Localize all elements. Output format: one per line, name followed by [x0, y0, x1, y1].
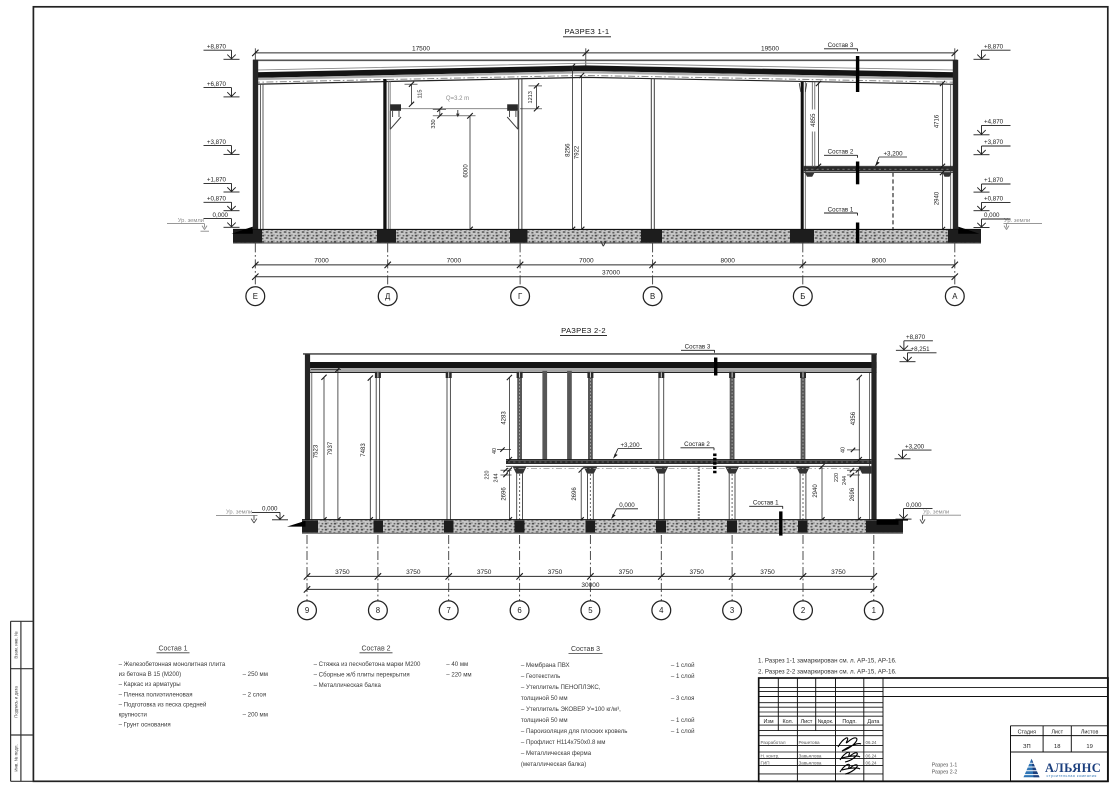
- svg-text:8256: 8256: [565, 143, 571, 157]
- svg-text:06.24: 06.24: [866, 754, 878, 759]
- svg-text:6000: 6000: [463, 164, 469, 178]
- svg-text:8: 8: [376, 606, 380, 615]
- svg-text:+3,870: +3,870: [984, 139, 1004, 146]
- svg-text:2696: 2696: [572, 487, 578, 501]
- svg-text:– Железобетонная монолитная п: – Железобетонная монолитная плита: [119, 661, 226, 668]
- svg-text:из бетона В 15 (М200): из бетона В 15 (М200): [119, 671, 182, 678]
- svg-text:220: 220: [834, 473, 840, 482]
- svg-text:37000: 37000: [602, 270, 620, 277]
- svg-text:7000: 7000: [579, 257, 594, 264]
- svg-text:Состав 3: Состав 3: [828, 42, 854, 49]
- svg-text:30000: 30000: [581, 582, 599, 589]
- svg-text:– Каркас из арматуры: – Каркас из арматуры: [119, 681, 181, 688]
- svg-text:+1,870: +1,870: [207, 177, 227, 184]
- svg-text:40: 40: [492, 448, 498, 454]
- svg-text:крупности: крупности: [119, 712, 147, 719]
- svg-text:Подп.: Подп.: [842, 719, 856, 725]
- svg-text:3750: 3750: [689, 569, 704, 576]
- svg-text:3750: 3750: [760, 569, 775, 576]
- svg-text:7523: 7523: [314, 444, 320, 458]
- svg-text:– Пленка полиэтиленовая: – Пленка полиэтиленовая: [119, 691, 193, 698]
- svg-text:Состав 1: Состав 1: [753, 500, 779, 507]
- svg-text:ГИП: ГИП: [761, 760, 770, 765]
- svg-text:Состав 3: Состав 3: [685, 344, 711, 351]
- svg-text:4: 4: [659, 606, 664, 615]
- svg-text:3750: 3750: [548, 569, 563, 576]
- svg-text:– Металлическая балка: – Металлическая балка: [314, 682, 382, 689]
- svg-text:– 1 слой: – 1 слой: [671, 662, 695, 669]
- svg-text:1. Разрез 1-1 замаркирован см.: 1. Разрез 1-1 замаркирован см. л. АР-15,…: [758, 658, 897, 665]
- svg-text:+3,200: +3,200: [905, 443, 925, 450]
- svg-text:Состав 2: Состав 2: [684, 441, 710, 448]
- svg-text:19: 19: [1086, 744, 1092, 750]
- svg-text:2696: 2696: [850, 487, 856, 501]
- svg-text:Кол.: Кол.: [782, 719, 793, 725]
- svg-text:АЛЬЯНС: АЛЬЯНС: [1045, 761, 1101, 775]
- svg-text:2. Разрез 2-2 замаркирован см.: 2. Разрез 2-2 замаркирован см. л. АР-15,…: [758, 669, 897, 676]
- svg-text:+8,251: +8,251: [911, 346, 931, 353]
- svg-text:– Металлическая ферма: – Металлическая ферма: [521, 750, 592, 757]
- svg-text:+3,200: +3,200: [883, 150, 903, 157]
- svg-text:(металлическая балка): (металлическая балка): [521, 761, 586, 768]
- svg-text:+8,870: +8,870: [207, 43, 227, 50]
- svg-text:Завьялова: Завьялова: [799, 754, 822, 759]
- svg-text:РАЗРЕЗ 1-1: РАЗРЕЗ 1-1: [565, 27, 610, 36]
- svg-text:06.24: 06.24: [866, 740, 878, 745]
- svg-text:3750: 3750: [831, 569, 846, 576]
- svg-text:– 1 слой: – 1 слой: [671, 717, 695, 724]
- svg-text:– 40 мм: – 40 мм: [446, 661, 468, 668]
- svg-text:Подпись и дата: Подпись и дата: [14, 686, 19, 718]
- svg-text:8000: 8000: [720, 257, 735, 264]
- svg-text:7937: 7937: [328, 441, 334, 455]
- svg-text:Разрез 2-2: Разрез 2-2: [932, 770, 958, 776]
- svg-text:– Стяжка из песчобетона марки: – Стяжка из песчобетона марки М200: [314, 661, 421, 668]
- svg-text:115: 115: [418, 90, 424, 99]
- svg-text:+8,870: +8,870: [984, 43, 1004, 50]
- svg-text:Состав 2: Состав 2: [828, 149, 854, 156]
- svg-text:– Профлист Н114х750х0.8 мм: – Профлист Н114х750х0.8 мм: [521, 739, 606, 746]
- svg-text:+0,870: +0,870: [984, 196, 1004, 203]
- svg-text:3750: 3750: [619, 569, 634, 576]
- svg-text:0,000: 0,000: [906, 502, 922, 509]
- svg-text:Лист: Лист: [801, 719, 813, 725]
- svg-text:1: 1: [872, 606, 876, 615]
- svg-text:+4,870: +4,870: [984, 119, 1004, 126]
- svg-text:+0,870: +0,870: [207, 196, 227, 203]
- svg-text:толщиной 50 мм: толщиной 50 мм: [521, 717, 568, 724]
- svg-text:Ур. земли: Ур. земли: [178, 218, 204, 224]
- svg-text:Состав 1: Состав 1: [158, 645, 187, 652]
- svg-text:– Геотекстиль: – Геотекстиль: [521, 673, 560, 680]
- svg-text:Состав 2: Состав 2: [361, 645, 390, 652]
- svg-text:244: 244: [842, 476, 848, 485]
- svg-text:1213: 1213: [528, 91, 534, 103]
- svg-text:Решетова: Решетова: [799, 740, 821, 745]
- svg-text:2696: 2696: [502, 487, 508, 501]
- svg-text:№док.: №док.: [818, 719, 834, 725]
- svg-text:– 2 слоя: – 2 слоя: [243, 691, 267, 698]
- svg-text:Стадия: Стадия: [1018, 729, 1036, 735]
- svg-text:+1,870: +1,870: [984, 177, 1004, 184]
- svg-text:Листов: Листов: [1081, 729, 1099, 735]
- svg-text:– Утеплитель ПЕНОПЛЭКС,: – Утеплитель ПЕНОПЛЭКС,: [521, 684, 601, 691]
- svg-text:7922: 7922: [574, 145, 580, 159]
- svg-text:7000: 7000: [447, 257, 462, 264]
- svg-text:РАЗРЕЗ 2-2: РАЗРЕЗ 2-2: [561, 326, 606, 335]
- svg-text:– 3 слоя: – 3 слоя: [671, 695, 695, 702]
- svg-text:7: 7: [447, 606, 451, 615]
- svg-text:– Сборные ж/б плиты перекрытия: – Сборные ж/б плиты перекрытия: [314, 672, 410, 679]
- svg-text:0,000: 0,000: [213, 212, 229, 219]
- svg-text:Разработал: Разработал: [761, 740, 786, 745]
- svg-text:2940: 2940: [813, 484, 819, 498]
- svg-text:5: 5: [588, 606, 593, 615]
- svg-text:Изм: Изм: [763, 719, 773, 725]
- svg-text:2: 2: [801, 606, 805, 615]
- svg-text:244: 244: [494, 474, 500, 483]
- svg-text:40: 40: [841, 447, 847, 453]
- svg-text:+6,870: +6,870: [207, 81, 227, 88]
- svg-text:Состав 3: Состав 3: [571, 646, 600, 653]
- svg-text:– 1 слой: – 1 слой: [671, 673, 695, 680]
- svg-text:0,000: 0,000: [984, 212, 1000, 219]
- svg-text:3: 3: [730, 606, 734, 615]
- svg-text:– 250 мм: – 250 мм: [243, 671, 268, 678]
- svg-text:толщиной 50 мм: толщиной 50 мм: [521, 695, 568, 702]
- svg-text:6: 6: [517, 606, 521, 615]
- svg-text:ЗП: ЗП: [1023, 744, 1031, 750]
- svg-text:– 220 мм: – 220 мм: [446, 672, 471, 679]
- svg-text:Н. контр.: Н. контр.: [761, 754, 780, 759]
- svg-text:Ур. земли: Ур. земли: [923, 509, 949, 515]
- svg-text:А: А: [952, 292, 958, 301]
- svg-text:Б: Б: [800, 292, 805, 301]
- svg-text:2940: 2940: [935, 191, 941, 205]
- svg-text:7000: 7000: [314, 257, 329, 264]
- svg-text:строительная компания: строительная компания: [1047, 774, 1097, 778]
- svg-text:Взам. инв. №: Взам. инв. №: [14, 631, 19, 658]
- svg-text:Инв. № подл.: Инв. № подл.: [14, 744, 19, 771]
- svg-text:– Мембрана ПВХ: – Мембрана ПВХ: [521, 662, 570, 669]
- svg-text:Разрез 1-1: Разрез 1-1: [932, 763, 958, 769]
- svg-text:330: 330: [431, 119, 437, 128]
- svg-text:В: В: [650, 292, 655, 301]
- svg-text:– Утеплитель ЭКОВЕР У=100 кг/м: – Утеплитель ЭКОВЕР У=100 кг/м³,: [521, 706, 621, 713]
- svg-text:17500: 17500: [412, 46, 430, 53]
- svg-text:4283: 4283: [502, 411, 508, 425]
- svg-text:0,000: 0,000: [262, 506, 278, 513]
- svg-text:3750: 3750: [406, 569, 421, 576]
- svg-text:18: 18: [1054, 744, 1060, 750]
- svg-text:– Грунт основания: – Грунт основания: [119, 722, 171, 729]
- svg-text:3750: 3750: [477, 569, 492, 576]
- svg-text:9: 9: [305, 606, 309, 615]
- svg-text:+8,870: +8,870: [906, 334, 926, 341]
- svg-text:7483: 7483: [361, 443, 367, 457]
- svg-text:– Подготовка из песка средней: – Подготовка из песка средней: [119, 701, 207, 708]
- svg-text:220: 220: [485, 471, 491, 480]
- svg-text:+3,200: +3,200: [620, 442, 640, 449]
- svg-text:8000: 8000: [872, 257, 887, 264]
- svg-text:Лист: Лист: [1051, 729, 1063, 735]
- svg-text:Дата: Дата: [867, 719, 879, 725]
- svg-text:3750: 3750: [335, 569, 350, 576]
- svg-text:– 1 слой: – 1 слой: [671, 728, 695, 735]
- svg-text:06.24: 06.24: [866, 760, 878, 765]
- svg-text:4356: 4356: [851, 411, 857, 425]
- svg-text:Е: Е: [253, 292, 258, 301]
- svg-text:Состав 1: Состав 1: [828, 206, 854, 213]
- svg-text:– 200 мм: – 200 мм: [243, 712, 268, 719]
- svg-text:Д: Д: [385, 292, 391, 301]
- svg-text:4855: 4855: [811, 113, 817, 127]
- svg-text:0,000: 0,000: [619, 502, 635, 509]
- svg-text:– Пароизоляция для плоских кро: – Пароизоляция для плоских кровель: [521, 728, 628, 735]
- svg-text:Ур. земли: Ур. земли: [226, 510, 252, 516]
- svg-text:4716: 4716: [935, 114, 941, 128]
- svg-text:Q=3.2 m: Q=3.2 m: [446, 96, 469, 102]
- svg-text:Завьялова: Завьялова: [799, 760, 822, 765]
- svg-text:19500: 19500: [761, 46, 779, 53]
- svg-text:+3,870: +3,870: [207, 139, 227, 146]
